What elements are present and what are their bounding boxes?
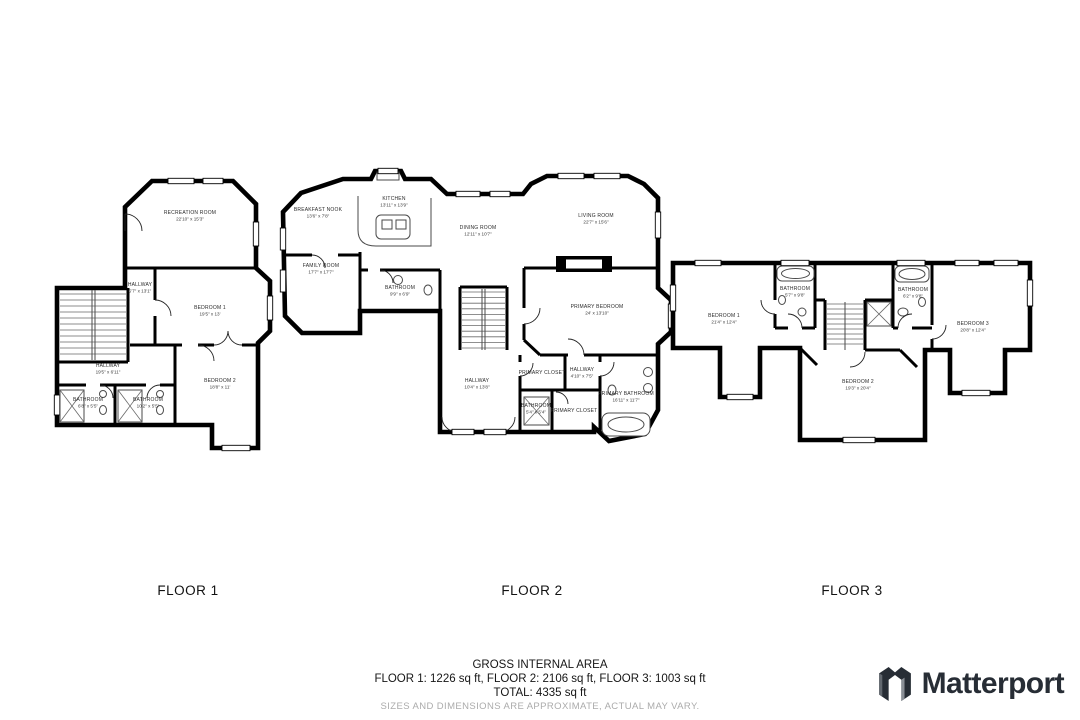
fireplace [556,256,612,272]
room-dims-hallway-main: 10'4" x 13'8" [464,385,490,390]
room-label-f3-bathroom-right: BATHROOM [898,287,928,293]
room-label-bathroom-mid: BATHROOM [385,285,415,291]
floor-2-caption: FLOOR 2 [452,583,612,598]
kitchen-island [376,215,410,239]
floor-1-plan: RECREATION ROOM 22'10" x 15'3" HALLWAY 5… [54,178,272,450]
room-label-breakfast-nook: BREAKFAST NOOK [294,207,343,213]
room-dims-hallway-lower: 19'5" x 6'11" [96,370,121,375]
room-label-living-room: LIVING ROOM [578,213,614,219]
room-dims-living-room: 22'7" x 15'6" [583,220,609,225]
floorplan-canvas: RECREATION ROOM 22'10" x 15'3" HALLWAY 5… [0,0,1080,640]
bathtub-icon [602,413,650,436]
room-dims-hallway-small: 4'10" x 7'5" [571,374,594,379]
disclaimer-text: SIZES AND DIMENSIONS ARE APPROXIMATE, AC… [0,701,1080,712]
room-dims-bathroom-mid: 9'9" x 6'9" [390,292,410,297]
toilet-icon [424,285,432,295]
room-dims-bathroom-2: 10'2" x 5'5" [137,404,160,409]
matterport-wordmark: Matterport [922,667,1064,701]
room-dims-dining-room: 12'11" x 10'7" [464,232,492,237]
room-dims-f3-bedroom-3: 20'8" x 12'4" [960,328,986,333]
room-dims-f3-bathroom-right: 6'2" x 9'8" [903,294,923,299]
sink-icon [644,368,653,377]
room-label-f3-bathroom-left: BATHROOM [780,286,810,292]
room-label-f3-bedroom-2: BEDROOM 2 [842,379,874,385]
room-label-primary-closet-1: PRIMARY CLOSET [519,370,566,376]
floor-1-caption: FLOOR 1 [108,583,268,598]
floor-3-closet [867,302,891,326]
floor-2-plan: BREAKFAST NOOK 13'6" x 7'8" KITCHEN 13'1… [280,168,673,441]
room-label-bedroom-1: BEDROOM 1 [194,305,226,311]
room-label-primary-bedroom: PRIMARY BEDROOM [571,304,624,310]
room-label-hallway-upper: HALLWAY [128,282,153,288]
matterport-m-icon [877,666,913,702]
room-dims-kitchen: 13'11" x 13'9" [380,203,408,208]
floor-3-exterior-walls [673,263,1030,440]
room-dims-recreation-room: 22'10" x 15'3" [176,217,204,222]
room-dims-bedroom-2: 18'8" x 11' [210,385,231,390]
room-dims-bathroom-small: 5'4" x 5'4" [526,410,546,415]
room-label-recreation-room: RECREATION ROOM [164,210,216,216]
room-label-dining-room: DINING ROOM [460,225,497,231]
room-dims-primary-bathroom: 16'11" x 11'7" [612,398,639,403]
room-label-kitchen: KITCHEN [382,196,406,202]
room-label-f3-bedroom-3: BEDROOM 3 [957,321,989,327]
toilet-icon [100,406,107,415]
floor-3-plan: BEDROOM 1 21'4" x 12'4" BATHROOM 5'7" x … [670,260,1032,442]
room-label-primary-bathroom: PRIMARY BATHROOM [598,391,654,397]
room-label-bathroom-small: BATHROOM [521,403,551,409]
room-label-family-room: FAMILY ROOM [303,263,339,269]
room-label-hallway-lower: HALLWAY [96,363,121,369]
room-dims-f3-bedroom-2: 19'3" x 20'4" [845,386,871,391]
room-label-hallway-main: HALLWAY [465,378,490,384]
room-dims-bedroom-1: 19'5" x 13' [199,312,220,317]
room-dims-primary-bedroom: 24' x 13'10" [585,311,609,316]
room-dims-bathroom-1: 6'8" x 5'5" [78,404,98,409]
room-dims-hallway-upper: 5'7" x 13'1" [129,289,152,294]
room-label-primary-closet-2: PRIMARY CLOSET [551,408,598,414]
matterport-logo: Matterport [877,666,1064,702]
room-label-bathroom-1: BATHROOM [73,397,103,403]
room-label-f3-bedroom-1: BEDROOM 1 [708,313,740,319]
toilet-icon [919,298,926,307]
room-label-hallway-small: HALLWAY [570,367,595,373]
sink-icon [798,308,806,316]
room-dims-family-room: 17'7" x 17'7" [308,270,334,275]
room-dims-f3-bedroom-1: 21'4" x 12'4" [711,320,737,325]
room-dims-f3-bathroom-left: 5'7" x 9'8" [785,293,805,298]
room-label-bedroom-2: BEDROOM 2 [204,378,236,384]
floor-3-caption: FLOOR 3 [772,583,932,598]
room-label-bathroom-2: BATHROOM [133,397,163,403]
sink-icon [394,276,403,285]
room-dims-breakfast-nook: 13'6" x 7'8" [307,214,330,219]
